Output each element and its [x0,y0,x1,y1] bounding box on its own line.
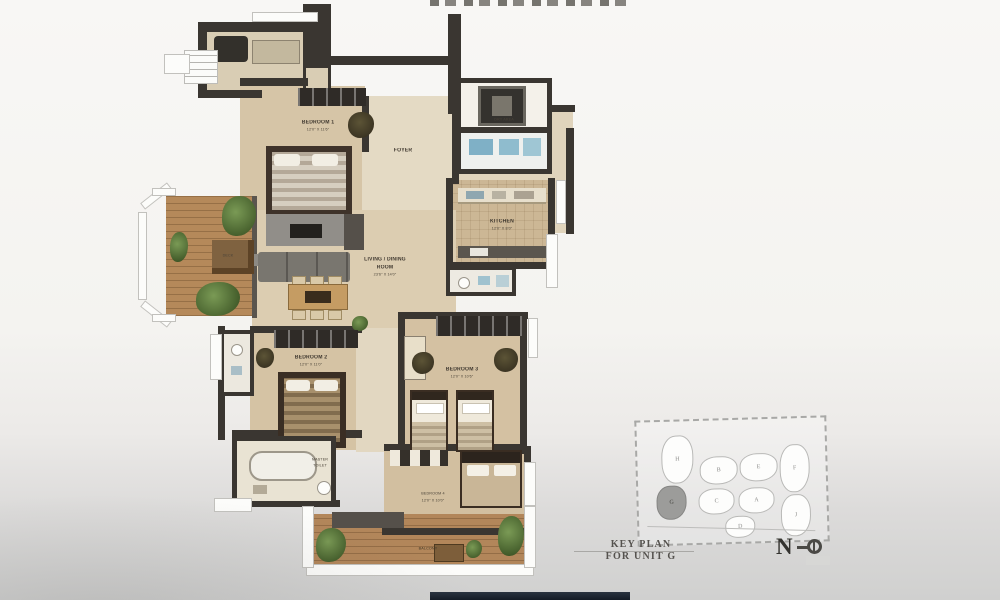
balcony-railing [306,564,534,576]
wc-fixture [458,277,470,289]
keyplan-unit-b: B [699,456,738,485]
utility-fixture [214,36,248,62]
basin-fixture [231,366,242,375]
bed-pillow [462,403,490,414]
wall [446,178,453,268]
bed-pillow [286,380,310,391]
bedroom3-wardrobe [436,316,522,336]
apartment-floorplan: BEDROOM 1 12'0" X 11'6" FOYER DRY AREA K… [0,0,1000,600]
wall [566,128,574,234]
bay-window-frame [152,314,176,322]
bed-headboard [412,392,446,400]
bedroom1-bed [266,146,352,216]
kitchen-label: KITCHEN [468,219,536,225]
basin-fixture [523,138,541,156]
bed-pillow [467,465,489,476]
bedroom3-label: BEDROOM 3 [428,367,496,373]
wall [330,56,458,65]
bedroom3-bed-b [456,390,494,452]
living-label-2: ROOM [355,265,415,271]
bay-window-frame [152,188,176,196]
kitchen-dims: 12'0" X 8'0" [477,227,527,231]
bedroom1-wardrobe [298,88,366,106]
window-frame [546,234,558,288]
lift-pattern [492,96,512,116]
window-frame [524,462,536,506]
window-frame [252,12,318,22]
dining-table [288,284,348,310]
kitchen-counter-top [458,188,546,204]
deck-label: DECK [209,254,246,258]
utility-bed [252,40,300,64]
bedroom2-dims: 12'0" X 11'0" [283,363,339,367]
keyplan-title: KEY PLAN FOR UNIT G [583,539,699,563]
window-frame [164,54,190,74]
bed-pillow [312,154,338,166]
shower-tray [496,275,509,287]
north-compass-needle [813,542,815,551]
bedroom3-dims: 12'0" X 10'6" [437,375,487,379]
wall [398,312,405,454]
window-frame [556,180,566,224]
bed-blanket [458,422,492,450]
north-letter: N [776,535,793,559]
keyplan-unit-c: C [698,488,735,515]
keyplan-unit-d: D [725,515,756,538]
key-plan: H B E F G C A J D [634,415,829,546]
keyplan-unit-h: H [661,435,694,484]
keyplan-unit-a: A [738,487,775,514]
north-shadow [806,556,830,565]
kitchen-counter-bottom [458,246,546,258]
wc-fixture [231,344,243,356]
balcony-bench [332,512,404,528]
master-toilet [232,436,336,506]
bedroom3-bed-a [410,390,448,452]
wc-fixture [317,481,331,495]
living-label-1: LIVING / DINING [355,257,415,263]
dining-chair [292,310,306,320]
window-frame [210,334,222,380]
bedroom1-dims: 12'0" X 11'6" [296,128,339,132]
counter-item [492,191,506,199]
keyplan-unit-g-highlighted: G [656,485,687,520]
keyplan-title-line1: KEY PLAN [583,539,699,551]
media-wall [344,214,364,250]
toilet-left [220,330,254,396]
master-toilet-label-1: MASTER [308,458,333,462]
keyplan-unit-e: E [739,453,778,482]
bed-headboard [462,452,520,463]
bay-window-frame [138,212,147,300]
bed-blanket [412,422,446,450]
dry-area-label: DRY AREA [478,118,530,122]
bedroom1-label: BEDROOM 1 [288,120,348,126]
sink [470,248,488,256]
foyer-label: FOYER [382,148,425,154]
bed-headboard [458,392,492,400]
balcony-label: BALCONY [409,547,446,551]
balcony-railing [524,506,536,568]
balcony-railing [302,506,314,568]
bedroom4-wardrobe [390,450,448,466]
master-toilet-label-2: TOILET [308,464,333,468]
window-frame [528,318,538,358]
north-indicator: N [776,535,846,571]
stove [466,191,484,199]
tv [290,224,322,238]
table-runner [305,291,331,303]
window-frame [214,498,252,512]
bedroom2-label: BEDROOM 2 [273,355,350,361]
basin-fixture [478,276,490,285]
toilet-mid [446,266,516,296]
bed-pillow [416,403,444,414]
living-dims: 23'6" X 14'0" [363,273,406,277]
bedroom4-bed [460,450,522,508]
bedroom4-label: BEDROOM 4 [411,492,454,496]
toilet-top [456,128,552,174]
bedroom2-wardrobe [274,330,358,348]
keyplan-title-line2: FOR UNIT G [583,551,699,563]
basin-fixture [253,485,267,494]
wall [240,78,308,86]
dining-chair [310,310,324,320]
bedroom4-dims: 12'0" X 10'0" [411,499,454,503]
counter-item [514,191,534,199]
tv-console [266,214,344,246]
keyplan-unit-f: F [779,444,810,493]
wc-fixture [499,139,519,155]
bed-pillow [494,465,516,476]
floorplan-page: BEDROOM 1 12'0" X 11'6" FOYER DRY AREA K… [0,0,1000,600]
wall [198,90,262,98]
bed-pillow [314,380,338,391]
dining-chair [328,310,342,320]
bed-pillow [274,154,300,166]
shower-tray [469,139,493,155]
